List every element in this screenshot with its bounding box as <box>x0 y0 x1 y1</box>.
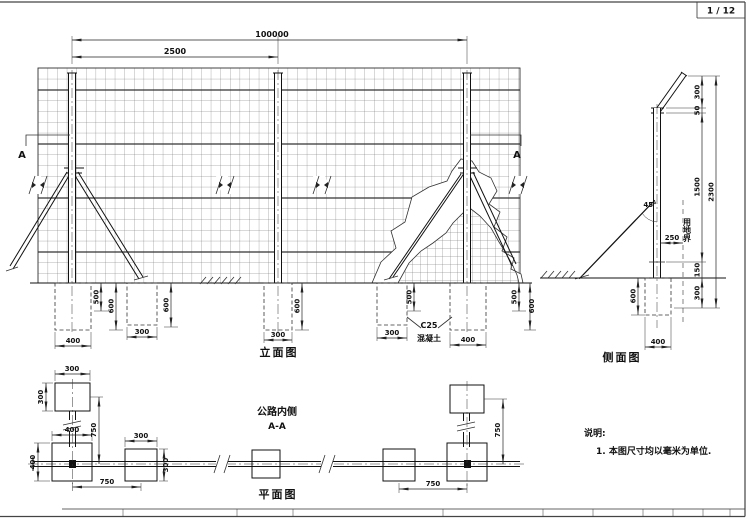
plan-right-assembly <box>383 381 487 486</box>
dim-boundary-offset: 250 <box>665 234 680 242</box>
dim-total-height: 2300 <box>708 182 716 202</box>
elevation-view: 100000 2500 A A 400 300 300 300 400 <box>6 30 536 359</box>
dim-upper: 1500 <box>694 177 702 197</box>
land-boundary-label: 用地界 <box>682 218 692 243</box>
dim-plan-span-left-v: 750 <box>90 423 98 438</box>
dim-plan-span-right-v: 750 <box>494 423 502 438</box>
side-brace <box>575 200 657 279</box>
footing-depth-dims <box>94 283 536 330</box>
concrete-grade-label: C25 <box>420 321 437 330</box>
page-number: 1 / 12 <box>707 7 735 17</box>
side-title: 侧面图 <box>603 350 642 364</box>
drawing-sheet: 1 / 12 <box>0 0 750 519</box>
dim-mid-footing: 300 <box>271 331 286 339</box>
plan-title: 平面图 <box>259 488 298 501</box>
dim-arm: 300 <box>694 85 702 100</box>
section-marker-a-left: A <box>18 150 26 161</box>
dim-total-length: 100000 <box>255 30 289 39</box>
dim-plan-anchor-w: 300 <box>134 432 149 440</box>
side-post <box>649 72 687 328</box>
dim-plan-top-w: 300 <box>65 365 80 373</box>
dim-depth-600-c: 600 <box>528 299 536 314</box>
elevation-title: 立面图 <box>260 345 299 359</box>
dim-depth-600-b: 600 <box>163 298 171 313</box>
dim-footing-width-left: 400 <box>66 337 81 345</box>
dim-plan-top-h: 300 <box>37 390 45 405</box>
notes-block: 说明: 1. 本图尺寸均以毫米为单位. <box>584 427 711 457</box>
dim-plan-span-right-h: 750 <box>426 480 441 488</box>
dim-brace-footing-right: 300 <box>385 329 400 337</box>
brace-angle-label: 45° <box>643 201 656 209</box>
plan-view: 300 300 400 400 750 300 300 750 750 750 … <box>28 365 524 501</box>
section-name-label: A-A <box>268 422 286 432</box>
dim-plan-base-h: 400 <box>29 455 37 470</box>
side-view: 45° 用地界 300 50 1500 150 300 2300 2 <box>540 72 726 364</box>
dim-side-footing-width: 400 <box>651 338 666 346</box>
dim-plan-anchor-h: 300 <box>162 458 170 473</box>
dim-post-spacing: 2500 <box>164 47 187 56</box>
dim-depth-500-c: 500 <box>511 290 519 305</box>
dim-footing-width-right: 400 <box>461 336 476 344</box>
elevation-top-dims <box>72 36 467 64</box>
side-dims <box>631 76 720 350</box>
section-location-label: 公路内侧 <box>257 405 297 418</box>
dim-depth-600-mid: 600 <box>294 299 302 314</box>
cad-drawing: 1 / 12 <box>0 0 750 519</box>
side-footing <box>645 278 671 315</box>
title-block <box>62 509 745 517</box>
dim-clearance: 150 <box>694 263 702 278</box>
concrete-name-label: 混凝土 <box>417 333 441 343</box>
dim-depth-600-a: 600 <box>108 299 116 314</box>
dim-embed: 300 <box>694 286 702 301</box>
dim-side-footing-depth: 600 <box>630 289 638 304</box>
notes-title: 说明: <box>584 427 606 439</box>
dim-lap: 50 <box>694 106 702 116</box>
dim-brace-footing-left: 300 <box>135 328 150 336</box>
plan-rail <box>28 455 524 473</box>
notes-item-1: 1. 本图尺寸均以毫米为单位. <box>596 445 711 457</box>
section-marker-a-right: A <box>513 150 521 161</box>
dim-plan-span-left-h: 750 <box>100 478 115 486</box>
dim-depth-500-a: 500 <box>93 290 101 305</box>
dim-plan-base-w: 400 <box>65 426 80 434</box>
dim-depth-500-b: 500 <box>406 290 414 305</box>
